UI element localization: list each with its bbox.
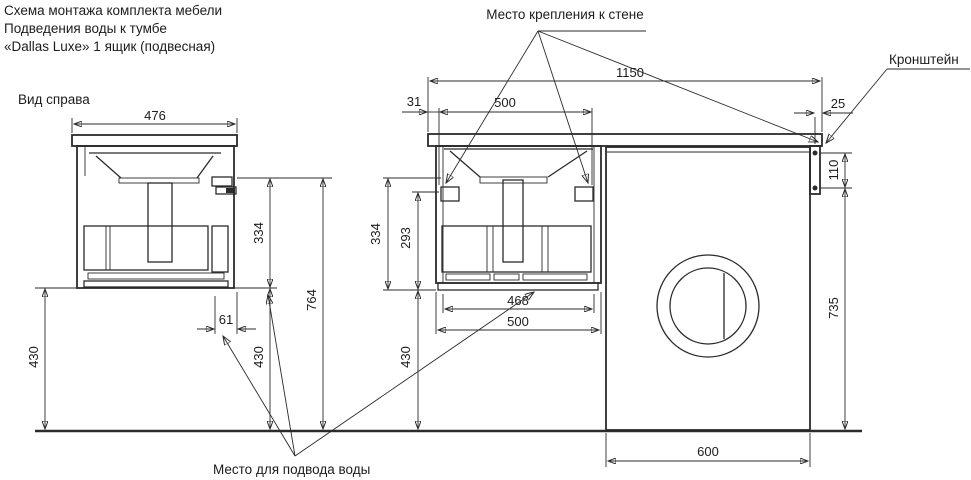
- dim-side-mount-height: 334: [251, 222, 266, 244]
- side-bottom-strip-1: [88, 273, 224, 279]
- wall-mount-leader-left: [446, 31, 538, 183]
- side-basin-bottom: [119, 178, 199, 183]
- mount-bracket-right: [575, 187, 593, 201]
- installation-diagram-page: Схема монтажа комплекта мебели Подведени…: [0, 0, 971, 480]
- title-line-3: «Dallas Luxe» 1 ящик (подвесная): [4, 39, 215, 54]
- dim-front-top-overhang: 25: [831, 96, 845, 111]
- technical-drawing: Схема монтажа комплекта мебели Подведени…: [0, 0, 971, 480]
- front-drawer-box: [442, 226, 591, 272]
- callout-water-supply: Место для подвода воды: [213, 292, 534, 477]
- dim-side-depth: 476: [144, 108, 166, 123]
- title-line-2: Подведения воды к тумбе: [4, 21, 167, 36]
- callout-bracket: Кронштейн: [826, 52, 970, 143]
- washing-machine: [606, 147, 810, 430]
- wall-mount-label: Место крепления к стене: [486, 7, 644, 22]
- side-countertop: [72, 135, 237, 146]
- side-drain-pipe: [148, 183, 172, 262]
- bracket-hole-bottom: [813, 186, 818, 191]
- side-bottom-strip-2: [84, 281, 228, 287]
- front-drain-pipe: [503, 180, 523, 262]
- dim-front-edge-offset: 31: [407, 94, 421, 109]
- mount-bracket-left: [441, 187, 459, 201]
- dim-front-clearance: 430: [398, 346, 413, 368]
- dim-side-clearance-right: 430: [251, 346, 266, 368]
- side-view-drawing: [72, 135, 237, 288]
- dim-front-bracket-holes: 110: [826, 160, 841, 181]
- front-view-dimensions: 1150 31 500 25 110 735: [368, 65, 853, 467]
- view-right-label: Вид справа: [18, 92, 90, 107]
- side-bracket-detail: [212, 177, 232, 186]
- side-basin-slant-left: [96, 156, 121, 178]
- front-view-drawing: [428, 134, 822, 430]
- side-basin-slant-right: [197, 156, 213, 178]
- dim-front-inner-height: 293: [398, 227, 413, 249]
- dim-front-cabinet-width: 500: [507, 314, 529, 329]
- dim-front-mount-height: 334: [368, 223, 383, 245]
- water-supply-label: Место для подвода воды: [213, 462, 370, 477]
- title-block: Схема монтажа комплекта мебели Подведени…: [4, 3, 222, 107]
- wall-mount-leader-bracket: [538, 31, 818, 142]
- dim-side-clearance-left: 430: [26, 346, 41, 368]
- side-drawer-box: [84, 226, 208, 270]
- washer-door-outer: [657, 255, 759, 357]
- dim-side-water-offset: 61: [219, 312, 233, 327]
- dim-front-washer-width: 600: [697, 444, 719, 459]
- side-cabinet-body: [77, 146, 234, 288]
- front-countertop: [428, 134, 822, 146]
- washer-door-inner: [670, 268, 746, 344]
- dim-front-drawer-width: 468: [507, 293, 529, 308]
- title-line-1: Схема монтажа комплекта мебели: [4, 3, 222, 18]
- dim-side-total-height: 764: [304, 289, 319, 311]
- bracket-hole-top: [813, 151, 818, 156]
- front-cabinet-rail: [438, 283, 598, 290]
- dim-front-bracket-floor: 735: [826, 297, 841, 319]
- side-drawer-front: [212, 226, 228, 272]
- bracket-label: Кронштейн: [889, 52, 959, 67]
- wall-mount-leader-right: [538, 31, 588, 183]
- side-view-dimensions: 476 334 430 764 430 61: [26, 108, 332, 429]
